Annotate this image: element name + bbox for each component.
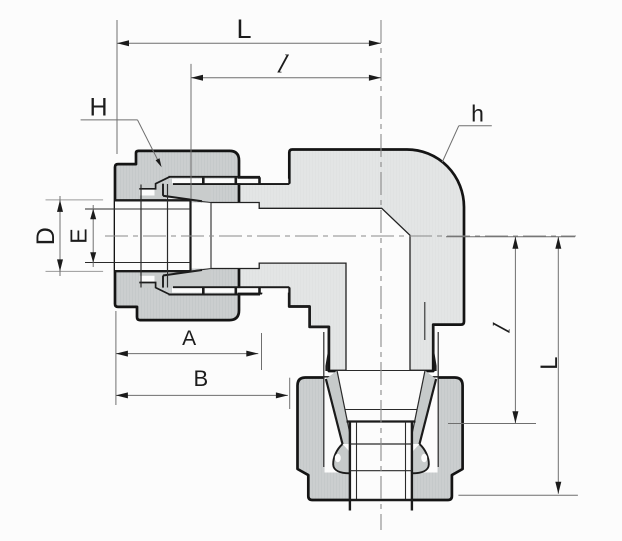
svg-text:h: h bbox=[471, 101, 484, 127]
svg-text:B: B bbox=[194, 366, 209, 391]
svg-text:D: D bbox=[32, 227, 60, 245]
svg-text:A: A bbox=[182, 327, 196, 350]
svg-text:L: L bbox=[236, 14, 251, 44]
svg-text:H: H bbox=[89, 94, 107, 122]
svg-text:E: E bbox=[65, 228, 91, 243]
svg-text:L: L bbox=[536, 357, 563, 370]
